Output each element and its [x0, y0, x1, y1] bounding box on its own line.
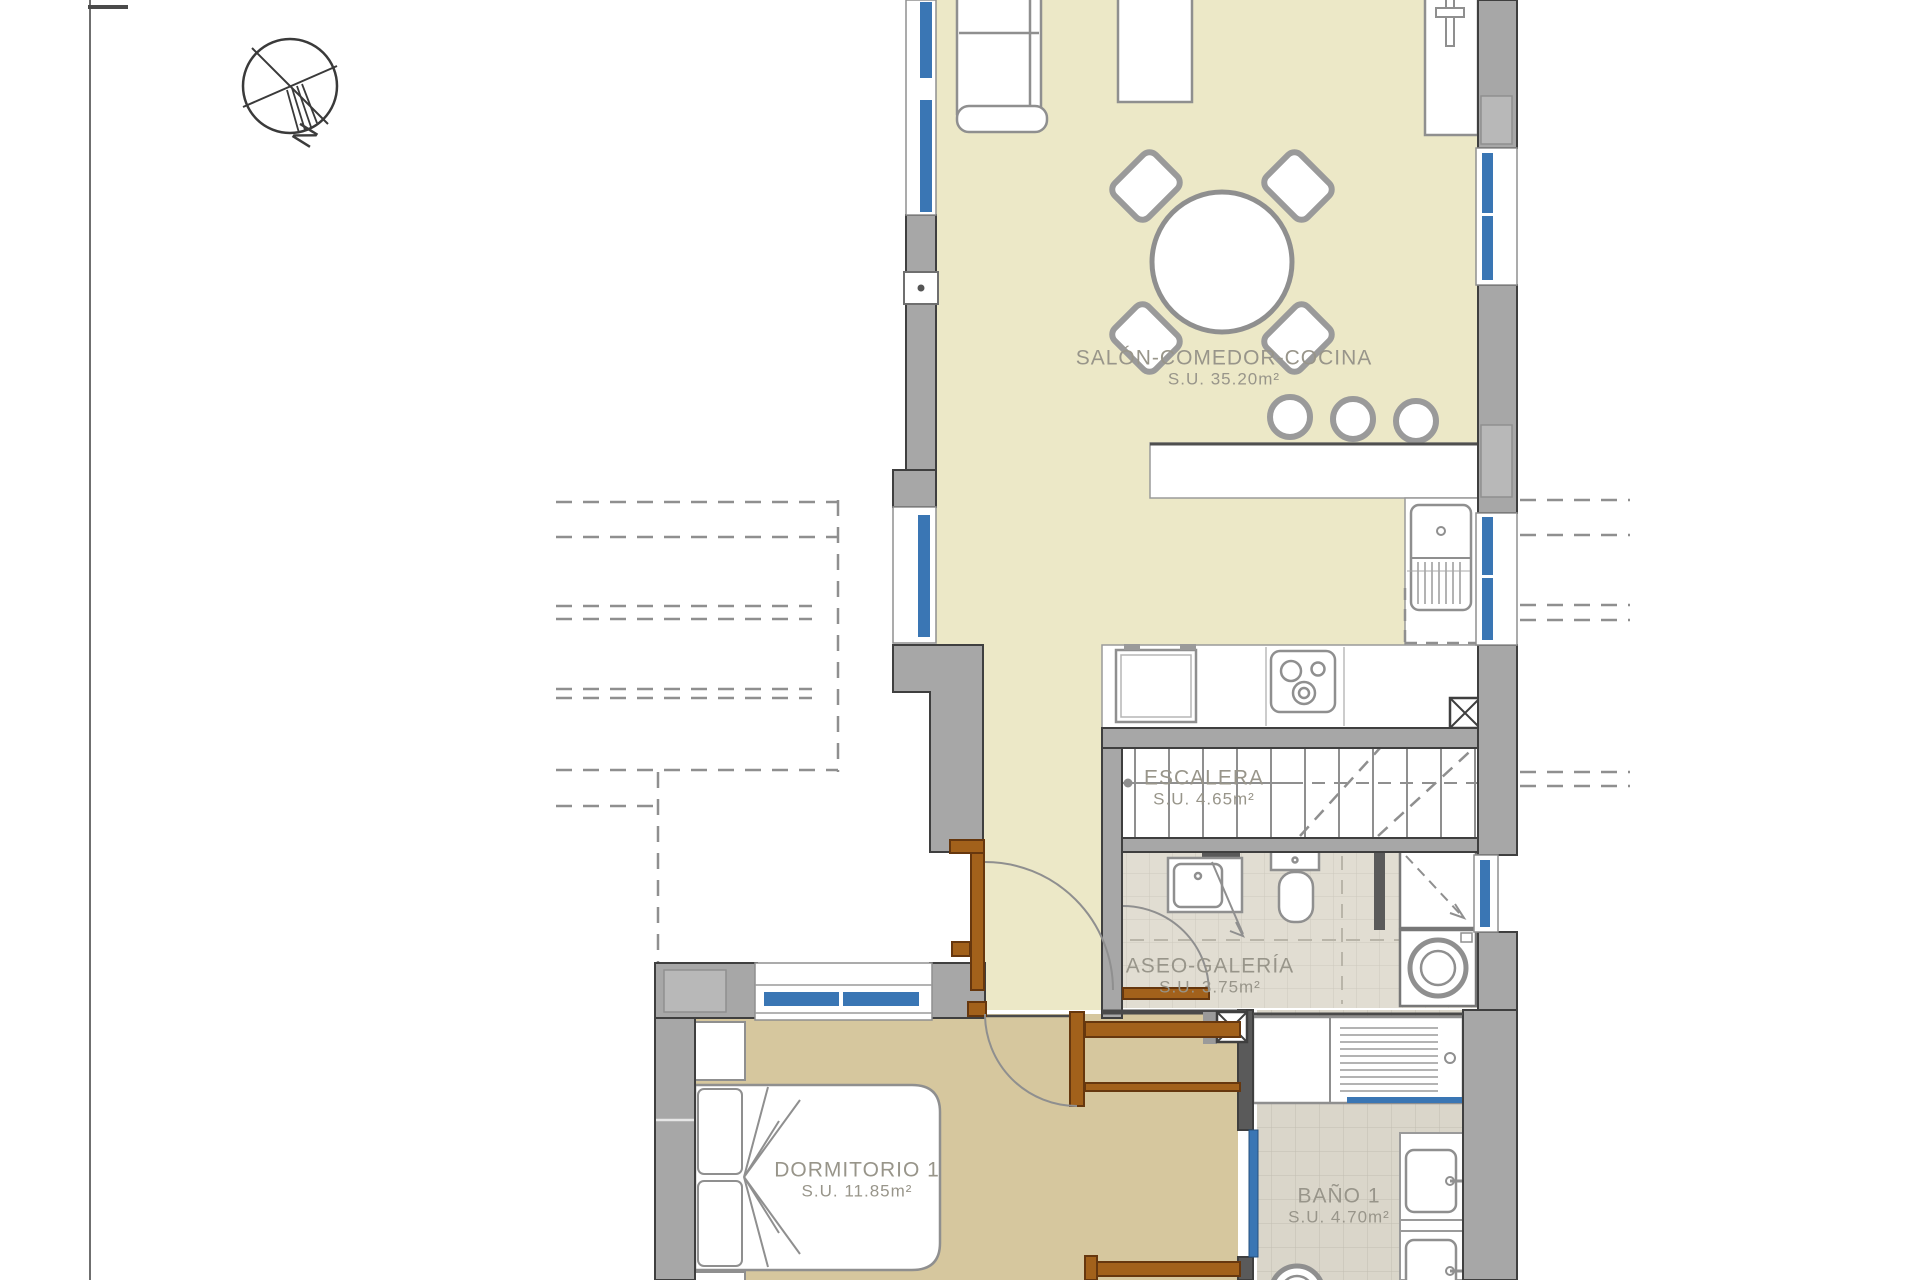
window — [893, 507, 936, 643]
tv-cabinet — [1118, 0, 1192, 102]
washing-machine — [1400, 930, 1476, 1006]
cooktop — [1271, 651, 1335, 712]
drainboard-lines — [1418, 562, 1460, 604]
kitchen-side-counter — [1405, 498, 1478, 645]
shaft-symbol — [1450, 698, 1480, 728]
window — [1476, 148, 1517, 285]
door-track — [1085, 1083, 1240, 1091]
appliance — [1116, 650, 1196, 722]
sheet-border — [88, 0, 128, 1280]
window — [906, 0, 936, 215]
door-leaf — [1123, 988, 1209, 999]
sofa — [957, 0, 1047, 132]
shower-tray — [1400, 850, 1476, 928]
window — [1476, 513, 1517, 645]
door-leaf — [1085, 1256, 1097, 1280]
glass-screen-blue — [1249, 1130, 1258, 1257]
wall-marker — [904, 272, 938, 304]
door-latch — [952, 942, 970, 956]
wall-step — [893, 645, 983, 852]
bath-sink — [1406, 1150, 1456, 1212]
stair-treads — [1135, 748, 1475, 838]
nightstand — [695, 1022, 745, 1080]
nightstand — [695, 1272, 745, 1280]
kitchen-counter-top — [1425, 0, 1478, 135]
north-arrow-compass: N — [243, 39, 337, 154]
door-leaf — [1097, 1262, 1240, 1276]
bathtub — [1253, 1017, 1463, 1103]
aseo-partition-wall — [1374, 845, 1385, 930]
dining-table — [1152, 192, 1292, 332]
kitchen-peninsula — [1150, 443, 1478, 498]
staircase — [1122, 744, 1478, 838]
door-leaf — [971, 853, 984, 990]
vanity — [1400, 1133, 1466, 1280]
floor-plan-sheet: N SALÓN-COMEDOR-COCINA S.U. 35.20m² ESCA… — [0, 0, 1920, 1280]
window — [755, 963, 932, 1020]
door-hinge — [950, 840, 984, 853]
door-leaf — [1070, 1012, 1084, 1106]
door-leaf — [1085, 1022, 1240, 1037]
floor-plan-drawing: N — [0, 0, 1920, 1280]
floor-corridor — [983, 645, 1102, 1010]
door-jamb — [968, 1002, 986, 1016]
pillow — [698, 1089, 742, 1174]
kitchen-lower-counter — [1102, 644, 1480, 728]
pillow — [698, 1181, 742, 1266]
bar-stools — [1270, 397, 1436, 441]
window — [1474, 855, 1498, 932]
